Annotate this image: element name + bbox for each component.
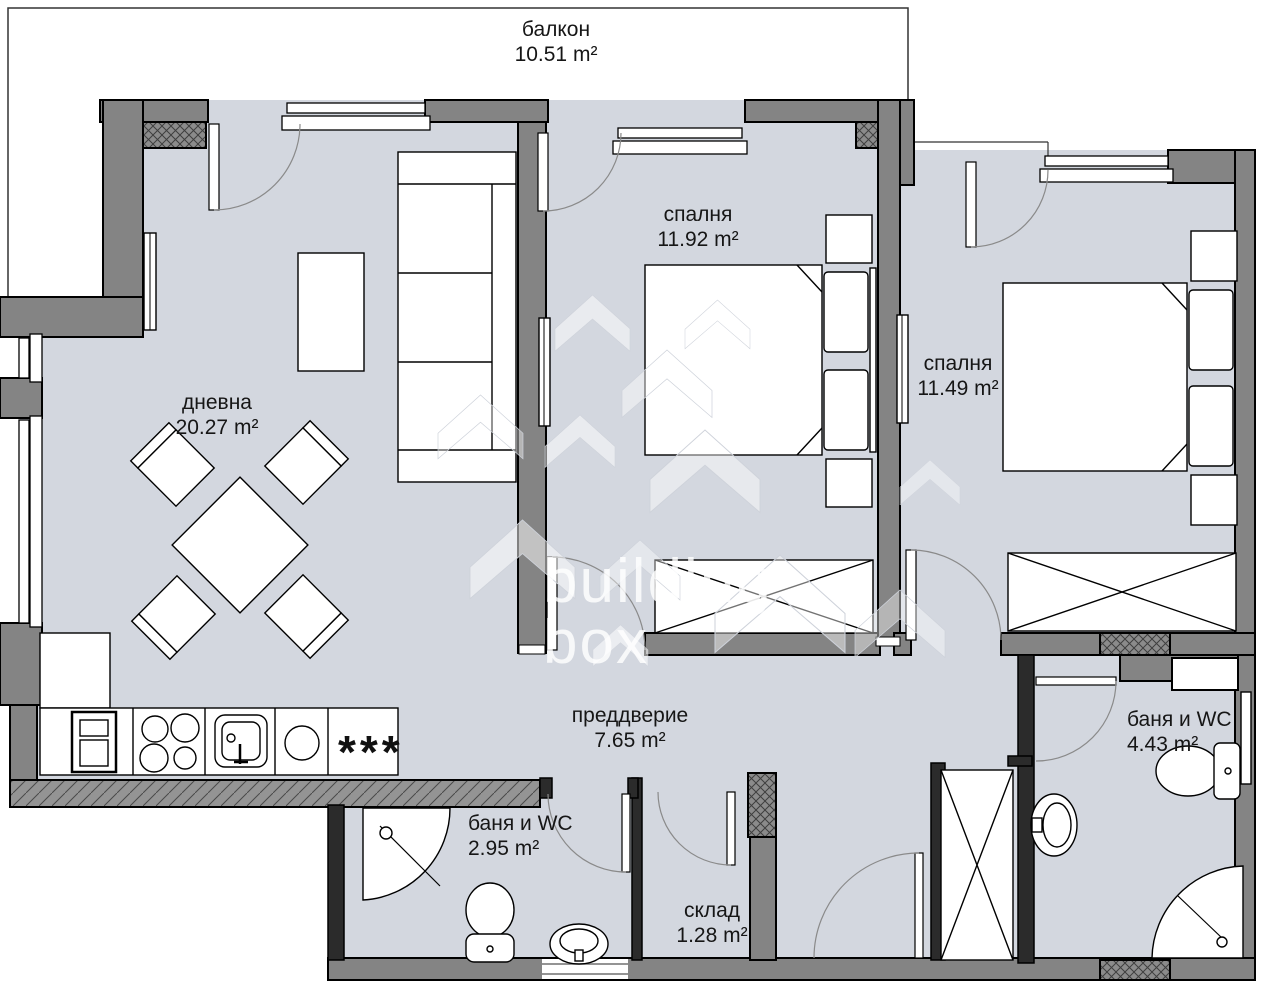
room-name: преддверие [572, 704, 688, 728]
room-name: спалня [657, 203, 738, 227]
room-area: 4.43 m² [1127, 733, 1232, 757]
radiator [144, 233, 156, 330]
room-area: 10.51 m² [515, 43, 598, 67]
watermark-text: building box [543, 552, 773, 674]
room-area: 1.28 m² [676, 924, 747, 948]
fridge [72, 712, 116, 772]
room-area: 2.95 m² [468, 837, 573, 861]
living-room-window [282, 103, 430, 130]
room-name: балкон [515, 18, 598, 42]
nightstand [1191, 475, 1237, 525]
room-name: дневна [176, 391, 259, 415]
room-area: 11.49 m² [917, 377, 998, 401]
nightstand [826, 215, 872, 263]
room-label-living-room: дневна 20.27 m² [176, 391, 259, 441]
room-label-storage: склад 1.28 m² [676, 899, 747, 949]
radiator [1241, 692, 1251, 784]
watermark-line-2: box [543, 613, 773, 674]
radiator [539, 318, 550, 426]
kitchen-hob-symbol: *** [338, 726, 404, 778]
kitchen-sink [215, 715, 267, 767]
room-label-bathroom-2: баня и WC 4.43 m² [1127, 708, 1232, 758]
watermark-line-1: building [543, 552, 773, 613]
floor-plan-canvas: *** building box балкон 10.51 m² спалня … [0, 0, 1261, 981]
wardrobe-bedroom-2 [1008, 553, 1236, 631]
living-room-side-window-upper [19, 334, 42, 382]
toilet-bathroom-1 [466, 883, 514, 962]
wardrobe-corridor [941, 770, 1013, 960]
sink-bathroom-1 [550, 924, 608, 964]
floor-plan-drawing: *** [0, 0, 1261, 981]
kitchen-tall-cabinet [40, 633, 110, 708]
bedroom-1-window [613, 128, 747, 154]
room-label-hallway: преддверие 7.65 m² [572, 704, 688, 754]
nightstand [1191, 231, 1237, 281]
room-label-bedroom-1: спалня 11.92 m² [657, 203, 738, 253]
room-name: спалня [917, 352, 998, 376]
room-name: баня и WC [1127, 708, 1232, 732]
bedroom-2-window [1040, 156, 1173, 182]
room-area: 20.27 m² [176, 416, 259, 440]
room-label-balcony: балкон 10.51 m² [515, 18, 598, 68]
room-area: 11.92 m² [657, 228, 738, 252]
room-name: баня и WC [468, 812, 573, 836]
room-name: склад [676, 899, 747, 923]
living-room-side-window-lower [19, 416, 42, 627]
room-label-bathroom-1: баня и WC 2.95 m² [468, 812, 573, 862]
room-area: 7.65 m² [572, 729, 688, 753]
room-label-bedroom-2: спалня 11.49 m² [917, 352, 998, 402]
radiator [897, 315, 908, 423]
sink-bathroom-2 [1031, 794, 1077, 856]
coffee-table [298, 253, 364, 371]
kitchen-basin [285, 726, 319, 760]
nightstand [826, 459, 872, 507]
